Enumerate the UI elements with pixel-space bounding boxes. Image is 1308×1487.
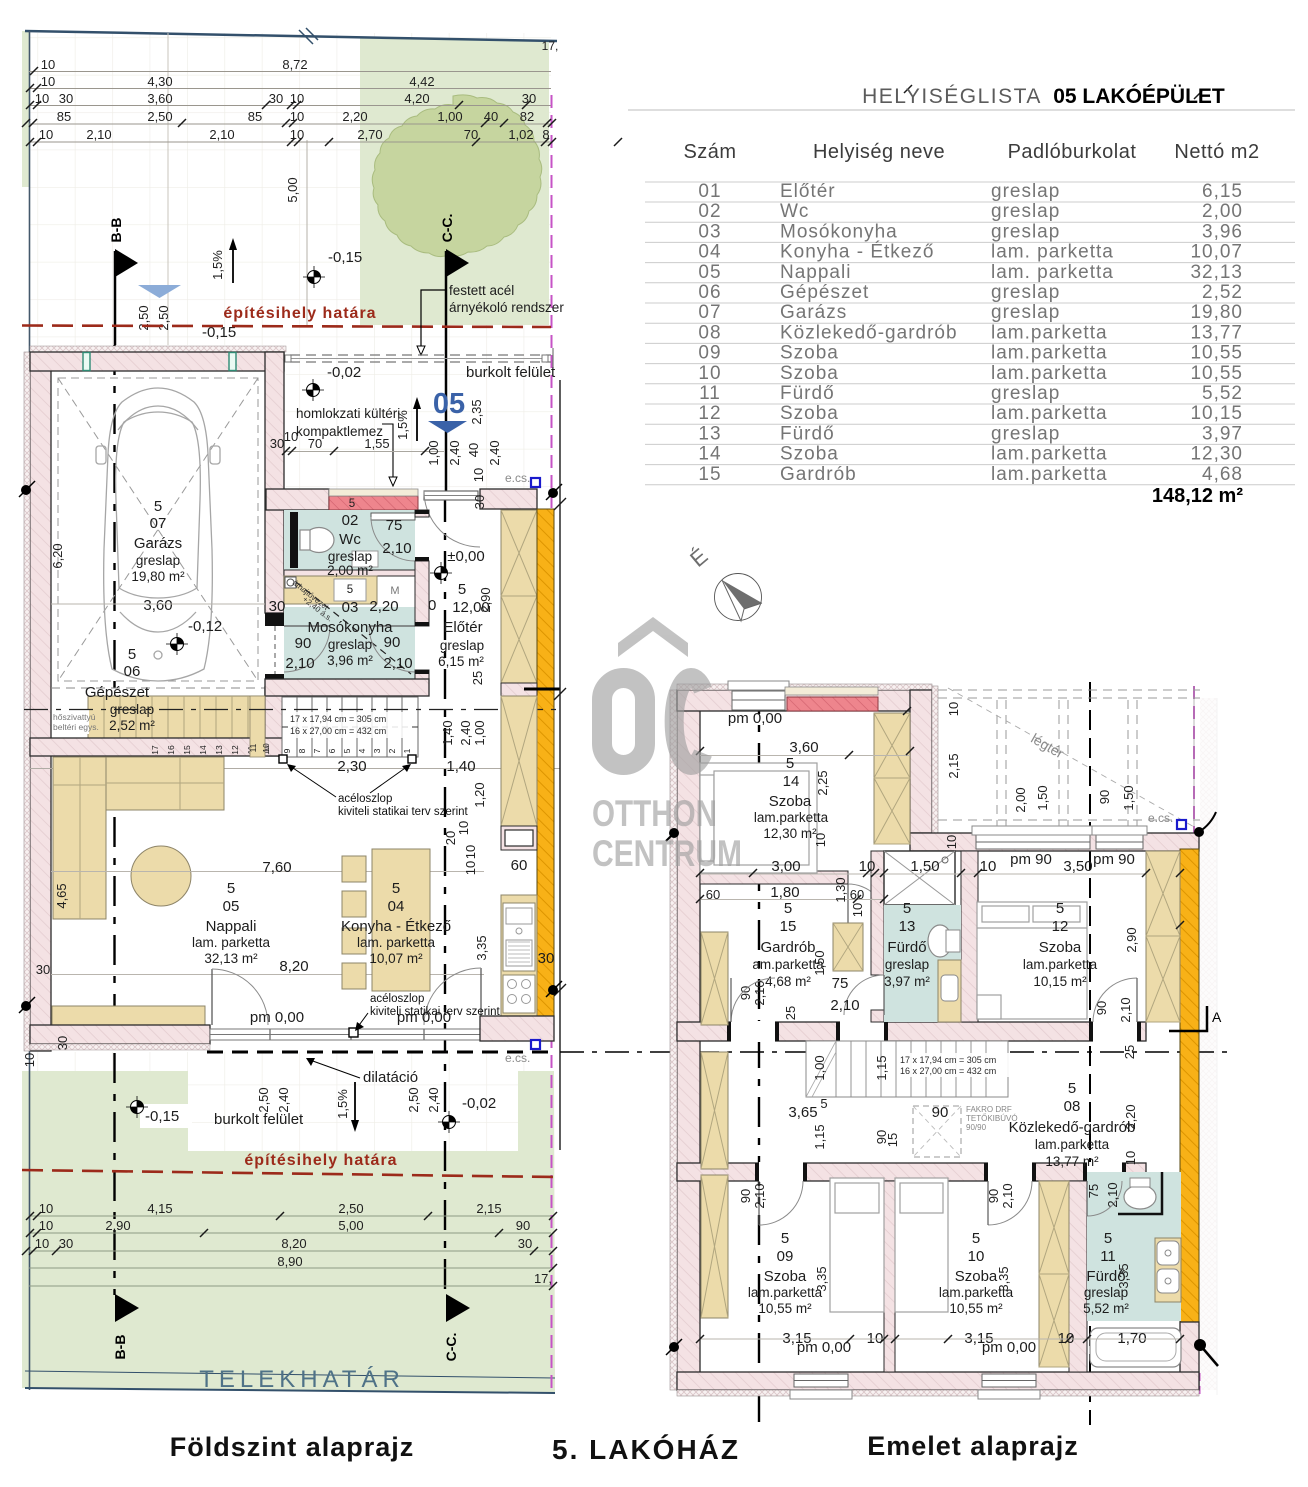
svg-text:pm 90: pm 90	[1093, 851, 1135, 868]
svg-text:10: 10	[290, 109, 304, 124]
svg-text:07: 07	[698, 302, 721, 323]
svg-text:Közlekedő-gardrób: Közlekedő-gardrób	[1009, 1119, 1136, 1136]
svg-text:greslap: greslap	[991, 282, 1060, 303]
svg-text:4,15: 4,15	[147, 1201, 172, 1216]
svg-text:2,10: 2,10	[830, 997, 859, 1014]
svg-text:Földszint alaprajz: Földszint alaprajz	[170, 1432, 415, 1462]
svg-text:10: 10	[968, 1248, 985, 1265]
svg-text:acéloszlop: acéloszlop	[370, 993, 424, 1005]
svg-text:32,13 m²: 32,13 m²	[204, 951, 258, 966]
svg-text:10: 10	[850, 903, 865, 917]
svg-text:30: 30	[59, 91, 73, 106]
svg-text:75: 75	[1086, 1184, 1101, 1198]
svg-text:lam.parketta: lam.parketta	[991, 444, 1108, 465]
svg-text:2,10: 2,10	[752, 980, 767, 1005]
svg-text:Szoba: Szoba	[764, 1268, 807, 1285]
svg-text:Nappali: Nappali	[206, 918, 257, 935]
svg-text:2,10: 2,10	[209, 127, 234, 142]
svg-text:2,40: 2,40	[447, 440, 462, 465]
svg-text:30: 30	[36, 962, 50, 977]
svg-text:70: 70	[464, 127, 478, 142]
svg-text:10: 10	[261, 743, 271, 753]
svg-text:12,30: 12,30	[1190, 444, 1243, 465]
svg-text:2,10: 2,10	[1000, 1183, 1015, 1208]
svg-text:19,80 m²: 19,80 m²	[131, 569, 185, 584]
svg-text:90: 90	[738, 986, 753, 1000]
svg-text:06: 06	[124, 663, 141, 680]
svg-text:3,35: 3,35	[996, 1266, 1011, 1291]
svg-text:6,20: 6,20	[50, 543, 65, 568]
svg-text:60: 60	[511, 857, 528, 874]
svg-text:14: 14	[783, 773, 800, 790]
svg-text:3,97: 3,97	[1202, 423, 1243, 444]
svg-text:2,90: 2,90	[1124, 927, 1139, 952]
svg-text:Szám: Szám	[683, 141, 736, 163]
svg-text:B-B: B-B	[112, 1335, 128, 1360]
svg-text:greslap: greslap	[991, 221, 1060, 242]
svg-text:1,15: 1,15	[812, 1124, 827, 1149]
svg-text:Szoba: Szoba	[955, 1268, 998, 1285]
svg-text:lam. parketta: lam. parketta	[991, 262, 1114, 283]
svg-text:03: 03	[342, 599, 359, 616]
svg-text:Wc: Wc	[339, 531, 361, 548]
svg-text:2,10: 2,10	[382, 540, 411, 557]
svg-text:5: 5	[784, 900, 792, 917]
svg-text:1,40: 1,40	[446, 758, 475, 775]
svg-text:-0,15: -0,15	[145, 1108, 179, 1125]
svg-text:8: 8	[297, 748, 307, 753]
svg-text:2,10: 2,10	[285, 655, 314, 672]
svg-text:Előtér: Előtér	[780, 181, 836, 202]
svg-text:06: 06	[698, 282, 721, 303]
svg-text:2,50: 2,50	[147, 109, 172, 124]
svg-text:4,30: 4,30	[147, 74, 172, 89]
svg-text:75: 75	[386, 517, 403, 534]
svg-text:lam.parketta: lam.parketta	[991, 403, 1108, 424]
svg-text:2,50: 2,50	[338, 1201, 363, 1216]
svg-text:85: 85	[57, 109, 71, 124]
svg-text:11: 11	[248, 743, 258, 752]
svg-text:90: 90	[986, 1189, 1001, 1203]
svg-text:2,90: 2,90	[478, 587, 493, 612]
svg-text:2,40: 2,40	[426, 1087, 441, 1112]
svg-text:2,40: 2,40	[487, 440, 502, 465]
svg-text:lam. parketta: lam. parketta	[357, 935, 436, 950]
svg-text:Konyha - Étkező: Konyha - Étkező	[341, 918, 451, 935]
svg-text:10: 10	[39, 1201, 53, 1216]
svg-text:lam. parketta: lam. parketta	[991, 242, 1114, 263]
svg-text:festett acél: festett acél	[449, 283, 514, 298]
svg-text:Szoba: Szoba	[780, 403, 839, 424]
svg-text:4,65: 4,65	[54, 883, 69, 908]
svg-text:e.cs.: e.cs.	[505, 1051, 530, 1065]
svg-text:lam.parketta: lam.parketta	[1035, 1137, 1110, 1152]
svg-text:02: 02	[342, 512, 359, 529]
svg-text:1,80: 1,80	[770, 884, 799, 901]
svg-text:pm 0,00: pm 0,00	[982, 1339, 1036, 1356]
svg-text:07: 07	[150, 515, 167, 532]
svg-text:10,15 m²: 10,15 m²	[1033, 974, 1087, 989]
svg-text:12: 12	[230, 745, 240, 755]
svg-text:6,15 m²: 6,15 m²	[438, 654, 484, 669]
svg-text:-0,12: -0,12	[188, 618, 222, 635]
svg-text:25: 25	[470, 671, 485, 685]
svg-text:B-B: B-B	[108, 218, 124, 243]
svg-text:04: 04	[388, 898, 405, 915]
svg-text:8: 8	[542, 127, 549, 142]
svg-text:30: 30	[472, 495, 487, 509]
svg-text:25: 25	[1122, 1045, 1137, 1059]
svg-text:5: 5	[128, 646, 136, 663]
svg-text:pm 90: pm 90	[1010, 851, 1052, 868]
svg-text:10,07: 10,07	[1190, 242, 1243, 263]
svg-text:greslap: greslap	[885, 957, 929, 972]
svg-text:90: 90	[932, 1104, 949, 1121]
svg-text:greslap: greslap	[136, 553, 180, 568]
svg-text:1,70: 1,70	[1117, 1330, 1146, 1347]
svg-text:2,10: 2,10	[752, 1183, 767, 1208]
svg-text:építésihely határa: építésihely határa	[244, 1152, 397, 1169]
svg-text:CENTRUM: CENTRUM	[592, 833, 742, 874]
svg-text:10,55 m²: 10,55 m²	[758, 1301, 812, 1316]
svg-text:1,00: 1,00	[437, 109, 462, 124]
svg-text:Padlóburkolat: Padlóburkolat	[1008, 141, 1137, 163]
svg-text:kiviteli statikai terv szerint: kiviteli statikai terv szerint	[338, 806, 469, 818]
svg-text:14: 14	[698, 444, 721, 465]
svg-text:4: 4	[357, 748, 367, 753]
svg-text:Közlekedő-gardrób: Közlekedő-gardrób	[780, 322, 958, 343]
svg-text:3,00: 3,00	[771, 858, 800, 875]
svg-text:Konyha - Étkező: Konyha - Étkező	[780, 242, 934, 263]
svg-text:90: 90	[738, 1189, 753, 1203]
svg-text:4,68 m²: 4,68 m²	[765, 974, 811, 989]
svg-text:17: 17	[150, 745, 160, 755]
svg-text:2,50: 2,50	[406, 1087, 421, 1112]
svg-text:3,97 m²: 3,97 m²	[884, 974, 930, 989]
svg-text:82: 82	[520, 109, 534, 124]
svg-text:TELEKHATÁR: TELEKHATÁR	[199, 1366, 405, 1393]
svg-text:6: 6	[327, 748, 337, 753]
svg-text:Fürdő: Fürdő	[780, 423, 835, 444]
svg-text:32,13: 32,13	[1190, 262, 1243, 283]
svg-text:Emelet alaprajz: Emelet alaprajz	[867, 1431, 1079, 1461]
svg-text:05: 05	[433, 388, 465, 420]
svg-text:1,55: 1,55	[364, 436, 389, 451]
svg-text:lam.parketta: lam.parketta	[991, 464, 1108, 485]
svg-text:lam.parketta: lam.parketta	[991, 363, 1108, 384]
svg-text:10: 10	[39, 1218, 53, 1233]
svg-text:Szoba: Szoba	[1039, 939, 1082, 956]
svg-text:2,30: 2,30	[337, 758, 366, 775]
svg-text:Gépészet: Gépészet	[85, 684, 150, 701]
svg-text:90: 90	[384, 634, 401, 651]
svg-text:árnyékoló rendszer: árnyékoló rendszer	[449, 300, 564, 315]
svg-text:10: 10	[22, 1053, 37, 1067]
svg-text:7: 7	[312, 748, 322, 753]
svg-text:greslap: greslap	[328, 637, 372, 652]
svg-text:5,00: 5,00	[338, 1218, 363, 1233]
svg-text:10,15: 10,15	[1190, 403, 1243, 424]
svg-text:5: 5	[1068, 1080, 1076, 1097]
svg-text:Garázs: Garázs	[780, 302, 847, 323]
svg-text:10,55 m²: 10,55 m²	[949, 1301, 1003, 1316]
svg-text:16 x 27,00 cm = 432 cm: 16 x 27,00 cm = 432 cm	[290, 726, 386, 736]
svg-text:e.cs.: e.cs.	[505, 471, 530, 485]
svg-text:Szoba: Szoba	[780, 444, 839, 465]
svg-text:10: 10	[471, 468, 486, 482]
svg-text:10: 10	[867, 1330, 884, 1347]
svg-text:05: 05	[698, 262, 721, 283]
svg-text:5: 5	[1056, 900, 1064, 917]
svg-text:5,52 m²: 5,52 m²	[1083, 1301, 1129, 1316]
svg-text:02: 02	[698, 201, 721, 222]
svg-text:10: 10	[35, 91, 49, 106]
svg-text:19,80: 19,80	[1190, 302, 1243, 323]
svg-text:11: 11	[699, 383, 721, 404]
svg-text:10: 10	[813, 833, 828, 847]
svg-text:8,72: 8,72	[282, 57, 307, 72]
svg-text:3,65: 3,65	[788, 1104, 817, 1121]
svg-text:5: 5	[781, 1230, 789, 1247]
svg-text:09: 09	[698, 343, 721, 364]
svg-text:Mosókonyha: Mosókonyha	[307, 619, 393, 636]
svg-text:M: M	[390, 585, 399, 597]
svg-text:2,10: 2,10	[1118, 997, 1133, 1022]
svg-text:1,20: 1,20	[472, 782, 487, 807]
svg-text:10,55: 10,55	[1190, 363, 1243, 384]
svg-text:Gépészet: Gépészet	[780, 282, 869, 303]
svg-text:3: 3	[372, 748, 382, 753]
svg-text:5: 5	[903, 900, 911, 917]
svg-text:10: 10	[463, 861, 478, 875]
svg-text:Nappali: Nappali	[780, 262, 851, 283]
svg-text:1,50: 1,50	[910, 858, 939, 875]
svg-text:75: 75	[832, 975, 849, 992]
svg-text:10,55: 10,55	[1190, 343, 1243, 364]
svg-text:lam.parketta: lam.parketta	[1023, 957, 1098, 972]
svg-text:13,77: 13,77	[1190, 322, 1243, 343]
svg-text:acéloszlop: acéloszlop	[338, 793, 392, 805]
svg-text:25: 25	[783, 1006, 798, 1020]
svg-text:4,42: 4,42	[409, 74, 434, 89]
svg-text:greslap: greslap	[440, 638, 484, 653]
svg-text:13,77 m²: 13,77 m²	[1045, 1154, 1099, 1169]
svg-text:6,15: 6,15	[1202, 181, 1243, 202]
svg-text:17 x 17,94 cm = 305 cm: 17 x 17,94 cm = 305 cm	[900, 1055, 996, 1065]
svg-text:lam.parketta: lam.parketta	[991, 343, 1108, 364]
svg-text:70: 70	[308, 436, 322, 451]
svg-text:4,20: 4,20	[404, 91, 429, 106]
svg-text:8,20: 8,20	[279, 958, 308, 975]
svg-text:08: 08	[1064, 1098, 1081, 1115]
svg-text:3,60: 3,60	[789, 739, 818, 756]
svg-text:pm 0,00: pm 0,00	[250, 1009, 304, 1026]
svg-text:2,25: 2,25	[815, 770, 830, 795]
svg-text:30: 30	[270, 436, 284, 451]
svg-text:5: 5	[227, 880, 235, 897]
svg-text:Gardrób: Gardrób	[780, 464, 857, 485]
svg-text:5: 5	[458, 581, 466, 598]
svg-text:5. LAKÓHÁZ: 5. LAKÓHÁZ	[552, 1434, 740, 1465]
svg-text:greslap: greslap	[991, 201, 1060, 222]
svg-text:60: 60	[706, 887, 720, 902]
svg-text:90: 90	[1097, 790, 1112, 804]
svg-text:05 LAKÓÉPÜLET: 05 LAKÓÉPÜLET	[1053, 84, 1225, 108]
svg-text:10: 10	[35, 1236, 49, 1251]
svg-text:lam.parketta: lam.parketta	[754, 810, 829, 825]
svg-text:1,30: 1,30	[833, 877, 848, 902]
svg-text:greslap: greslap	[991, 383, 1060, 404]
svg-text:Nettó m2: Nettó m2	[1174, 141, 1259, 163]
svg-text:30: 30	[55, 1036, 70, 1050]
svg-text:10: 10	[290, 91, 304, 106]
svg-text:1,02: 1,02	[508, 127, 533, 142]
svg-text:2,15: 2,15	[946, 753, 961, 778]
svg-text:13: 13	[698, 423, 721, 444]
svg-text:1,00: 1,00	[426, 440, 441, 465]
svg-text:2,10: 2,10	[383, 655, 412, 672]
svg-text:3,60: 3,60	[143, 597, 172, 614]
svg-text:építésihely határa: építésihely határa	[223, 305, 376, 322]
svg-text:Helyiség neve: Helyiség neve	[813, 141, 945, 163]
svg-text:5: 5	[347, 584, 353, 596]
svg-text:5,00: 5,00	[285, 177, 300, 202]
svg-text:03: 03	[698, 221, 721, 242]
svg-text:5,52: 5,52	[1202, 383, 1243, 404]
svg-text:30: 30	[518, 1236, 532, 1251]
svg-text:5: 5	[1104, 1230, 1112, 1247]
svg-text:1,00: 1,00	[472, 720, 487, 745]
svg-text:1,50: 1,50	[1035, 785, 1050, 810]
svg-text:3,35: 3,35	[1116, 1263, 1131, 1288]
svg-text:17,: 17,	[534, 1271, 552, 1286]
svg-text:40: 40	[466, 443, 481, 457]
svg-text:burkolt felület: burkolt felület	[214, 1111, 304, 1128]
svg-text:5: 5	[972, 1230, 980, 1247]
svg-text:13: 13	[899, 918, 916, 935]
svg-text:Előtér: Előtér	[443, 619, 482, 636]
svg-text:greslap: greslap	[991, 302, 1060, 323]
svg-text:14: 14	[198, 745, 208, 755]
svg-text:OTTHON: OTTHON	[592, 793, 717, 834]
svg-text:7,60: 7,60	[262, 859, 291, 876]
svg-text:lam.parketta: lam.parketta	[991, 322, 1108, 343]
svg-text:3,96: 3,96	[1202, 221, 1243, 242]
svg-text:90/90: 90/90	[966, 1123, 987, 1132]
svg-text:148,12 m²: 148,12 m²	[1152, 485, 1244, 507]
svg-text:greslap: greslap	[328, 549, 372, 564]
svg-text:1,5%: 1,5%	[210, 250, 225, 280]
svg-text:2,90: 2,90	[105, 1218, 130, 1233]
svg-text:40: 40	[484, 109, 498, 124]
svg-text:3,50: 3,50	[1063, 858, 1092, 875]
svg-text:3,60: 3,60	[147, 91, 172, 106]
svg-text:-0,02: -0,02	[327, 364, 361, 381]
svg-text:2,10: 2,10	[86, 127, 111, 142]
svg-text:pm 0,00: pm 0,00	[728, 710, 782, 727]
svg-text:30: 30	[59, 1236, 73, 1251]
svg-text:5: 5	[342, 748, 352, 753]
svg-text:2: 2	[387, 748, 397, 753]
svg-text:16: 16	[166, 745, 176, 755]
svg-text:90: 90	[1094, 1001, 1109, 1015]
svg-text:2,00: 2,00	[1013, 787, 1028, 812]
svg-text:kiviteli statikai terv szerint: kiviteli statikai terv szerint	[370, 1006, 501, 1018]
svg-text:1,50: 1,50	[1121, 785, 1136, 810]
svg-text:3,35: 3,35	[814, 1266, 829, 1291]
svg-text:15: 15	[182, 745, 192, 755]
svg-text:10: 10	[39, 127, 53, 142]
svg-text:hőszivattyú: hőszivattyú	[53, 712, 96, 722]
svg-text:lam. parketta: lam. parketta	[192, 935, 271, 950]
svg-text:15: 15	[698, 464, 721, 485]
svg-text:12: 12	[1052, 918, 1069, 935]
svg-text:Garázs: Garázs	[134, 535, 182, 552]
svg-text:12,30 m²: 12,30 m²	[763, 826, 817, 841]
svg-text:2,70: 2,70	[357, 127, 382, 142]
svg-text:Fürdő: Fürdő	[780, 383, 835, 404]
svg-text:1,5%: 1,5%	[335, 1089, 350, 1119]
svg-text:FAKRO DRF: FAKRO DRF	[966, 1105, 1012, 1114]
svg-text:15: 15	[780, 918, 797, 935]
svg-text:±0,00: ±0,00	[447, 548, 484, 565]
svg-text:2,35: 2,35	[469, 399, 484, 424]
svg-text:10: 10	[456, 821, 471, 835]
svg-text:Mosókonyha: Mosókonyha	[780, 221, 898, 242]
svg-text:1,40: 1,40	[440, 720, 455, 745]
svg-text:30: 30	[269, 91, 283, 106]
svg-text:08: 08	[698, 322, 721, 343]
svg-text:5: 5	[349, 498, 355, 510]
svg-text:30: 30	[538, 950, 555, 967]
svg-text:2,52 m²: 2,52 m²	[109, 718, 155, 733]
svg-text:1,15: 1,15	[874, 1055, 889, 1080]
svg-text:5: 5	[820, 1096, 827, 1111]
svg-text:10: 10	[1123, 1151, 1138, 1165]
svg-text:burkolt felület: burkolt felület	[466, 364, 556, 381]
svg-text:greslap: greslap	[991, 181, 1060, 202]
svg-text:8,90: 8,90	[277, 1254, 302, 1269]
svg-text:10,07 m²: 10,07 m²	[369, 951, 423, 966]
svg-text:16 x 27,00 cm = 432 cm: 16 x 27,00 cm = 432 cm	[900, 1066, 996, 1076]
svg-text:04: 04	[698, 242, 721, 263]
svg-text:3,96 m²: 3,96 m²	[327, 653, 373, 668]
svg-text:9: 9	[282, 748, 292, 753]
svg-text:01: 01	[698, 181, 721, 202]
svg-text:11: 11	[1100, 1248, 1116, 1265]
svg-text:05: 05	[223, 898, 240, 915]
svg-text:13: 13	[214, 745, 224, 755]
svg-text:17,: 17,	[542, 39, 559, 53]
svg-text:10: 10	[290, 127, 304, 142]
svg-text:10: 10	[1058, 1330, 1075, 1347]
svg-text:2,50: 2,50	[256, 1087, 271, 1112]
svg-text:-0,02: -0,02	[462, 1095, 496, 1112]
svg-text:10: 10	[944, 835, 959, 849]
svg-text:2,52: 2,52	[1202, 282, 1243, 303]
svg-text:2,40: 2,40	[458, 720, 473, 745]
svg-text:2,00: 2,00	[1202, 201, 1243, 222]
svg-text:beltéri egys.: beltéri egys.	[53, 722, 99, 732]
svg-text:C-C.: C-C.	[439, 214, 455, 243]
svg-text:2,20: 2,20	[1123, 1104, 1138, 1129]
svg-text:90: 90	[516, 1218, 530, 1233]
svg-text:HELYISÉGLISTA: HELYISÉGLISTA	[862, 85, 1042, 108]
svg-text:4,68: 4,68	[1202, 464, 1243, 485]
svg-text:09: 09	[777, 1248, 794, 1265]
svg-text:e.cs.: e.cs.	[1148, 811, 1173, 825]
svg-text:Szoba: Szoba	[780, 363, 839, 384]
